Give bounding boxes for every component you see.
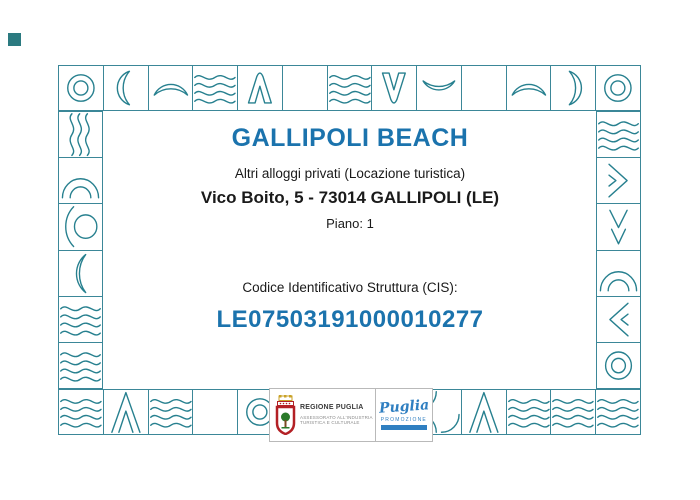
tile-border-left (58, 111, 103, 389)
border-tile-empty (462, 66, 506, 110)
border-tile-rings (59, 66, 103, 110)
border-tile-chevron-right (597, 158, 640, 203)
border-tile-waves (193, 66, 237, 110)
certificate-page: GALLIPOLI BEACH Altri alloggi privati (L… (0, 0, 700, 500)
border-tile-waves (149, 390, 193, 434)
puglia-script-wordmark: Puglia (378, 398, 429, 415)
border-tile-waves (328, 66, 372, 110)
promozione-label: PROMOZIONE (381, 417, 427, 423)
border-tile-empty (193, 390, 237, 434)
border-tile-smile (417, 66, 461, 110)
cis-label: Codice Identificativo Struttura (CIS): (104, 280, 596, 295)
border-tile-crescent-left (104, 66, 148, 110)
border-tile-rings (597, 343, 640, 388)
border-tile-waves (59, 297, 102, 342)
tile-border-top (58, 65, 641, 111)
footer-logo-strip: REGIONE PUGLIA ASSESSORATO ALL'INDUSTRIA… (269, 388, 433, 442)
border-tile-vwaves (59, 112, 102, 157)
border-tile-waves (597, 112, 640, 157)
border-tile-dome (597, 251, 640, 296)
border-tile-waves (59, 390, 103, 434)
border-tile-waves (59, 343, 102, 388)
regione-puglia-name: REGIONE PUGLIA (300, 404, 373, 413)
border-tile-vee-nested (597, 204, 640, 249)
border-tile-rings (596, 66, 640, 110)
border-tile-crescent-right (551, 66, 595, 110)
regione-puglia-logo: REGIONE PUGLIA ASSESSORATO ALL'INDUSTRIA… (270, 389, 376, 441)
structure-name-title: GALLIPOLI BEACH (104, 124, 596, 153)
border-tile-chevron-left (597, 297, 640, 342)
pugliapromozione-logo: Puglia PROMOZIONE (376, 389, 432, 441)
border-tile-circle-arc (59, 204, 102, 249)
cis-code: LE07503191000010277 (104, 306, 596, 334)
stray-accent-square (8, 33, 21, 46)
border-tile-vee (372, 66, 416, 110)
promozione-agency-bar (381, 425, 427, 430)
border-tile-chevron-up (238, 66, 282, 110)
border-tile-waves (507, 390, 551, 434)
border-tile-hump (149, 66, 193, 110)
border-tile-big-arc (59, 251, 102, 296)
border-tile-waves (551, 390, 595, 434)
address-line: Vico Boito, 5 - 73014 GALLIPOLI (LE) (104, 188, 596, 208)
border-tile-empty (283, 66, 327, 110)
border-tile-waves (596, 390, 640, 434)
structure-type-line: Altri alloggi privati (Locazione turisti… (104, 166, 596, 181)
floor-line: Piano: 1 (104, 216, 596, 231)
tile-border-right (596, 111, 641, 389)
border-tile-mountain (104, 390, 148, 434)
regione-puglia-coat-of-arms-icon (275, 395, 296, 435)
border-tile-mountain (462, 390, 506, 434)
border-tile-dome (59, 158, 102, 203)
border-tile-hump (507, 66, 551, 110)
regione-dept-line2: TURISTICA E CULTURALE (300, 420, 373, 426)
